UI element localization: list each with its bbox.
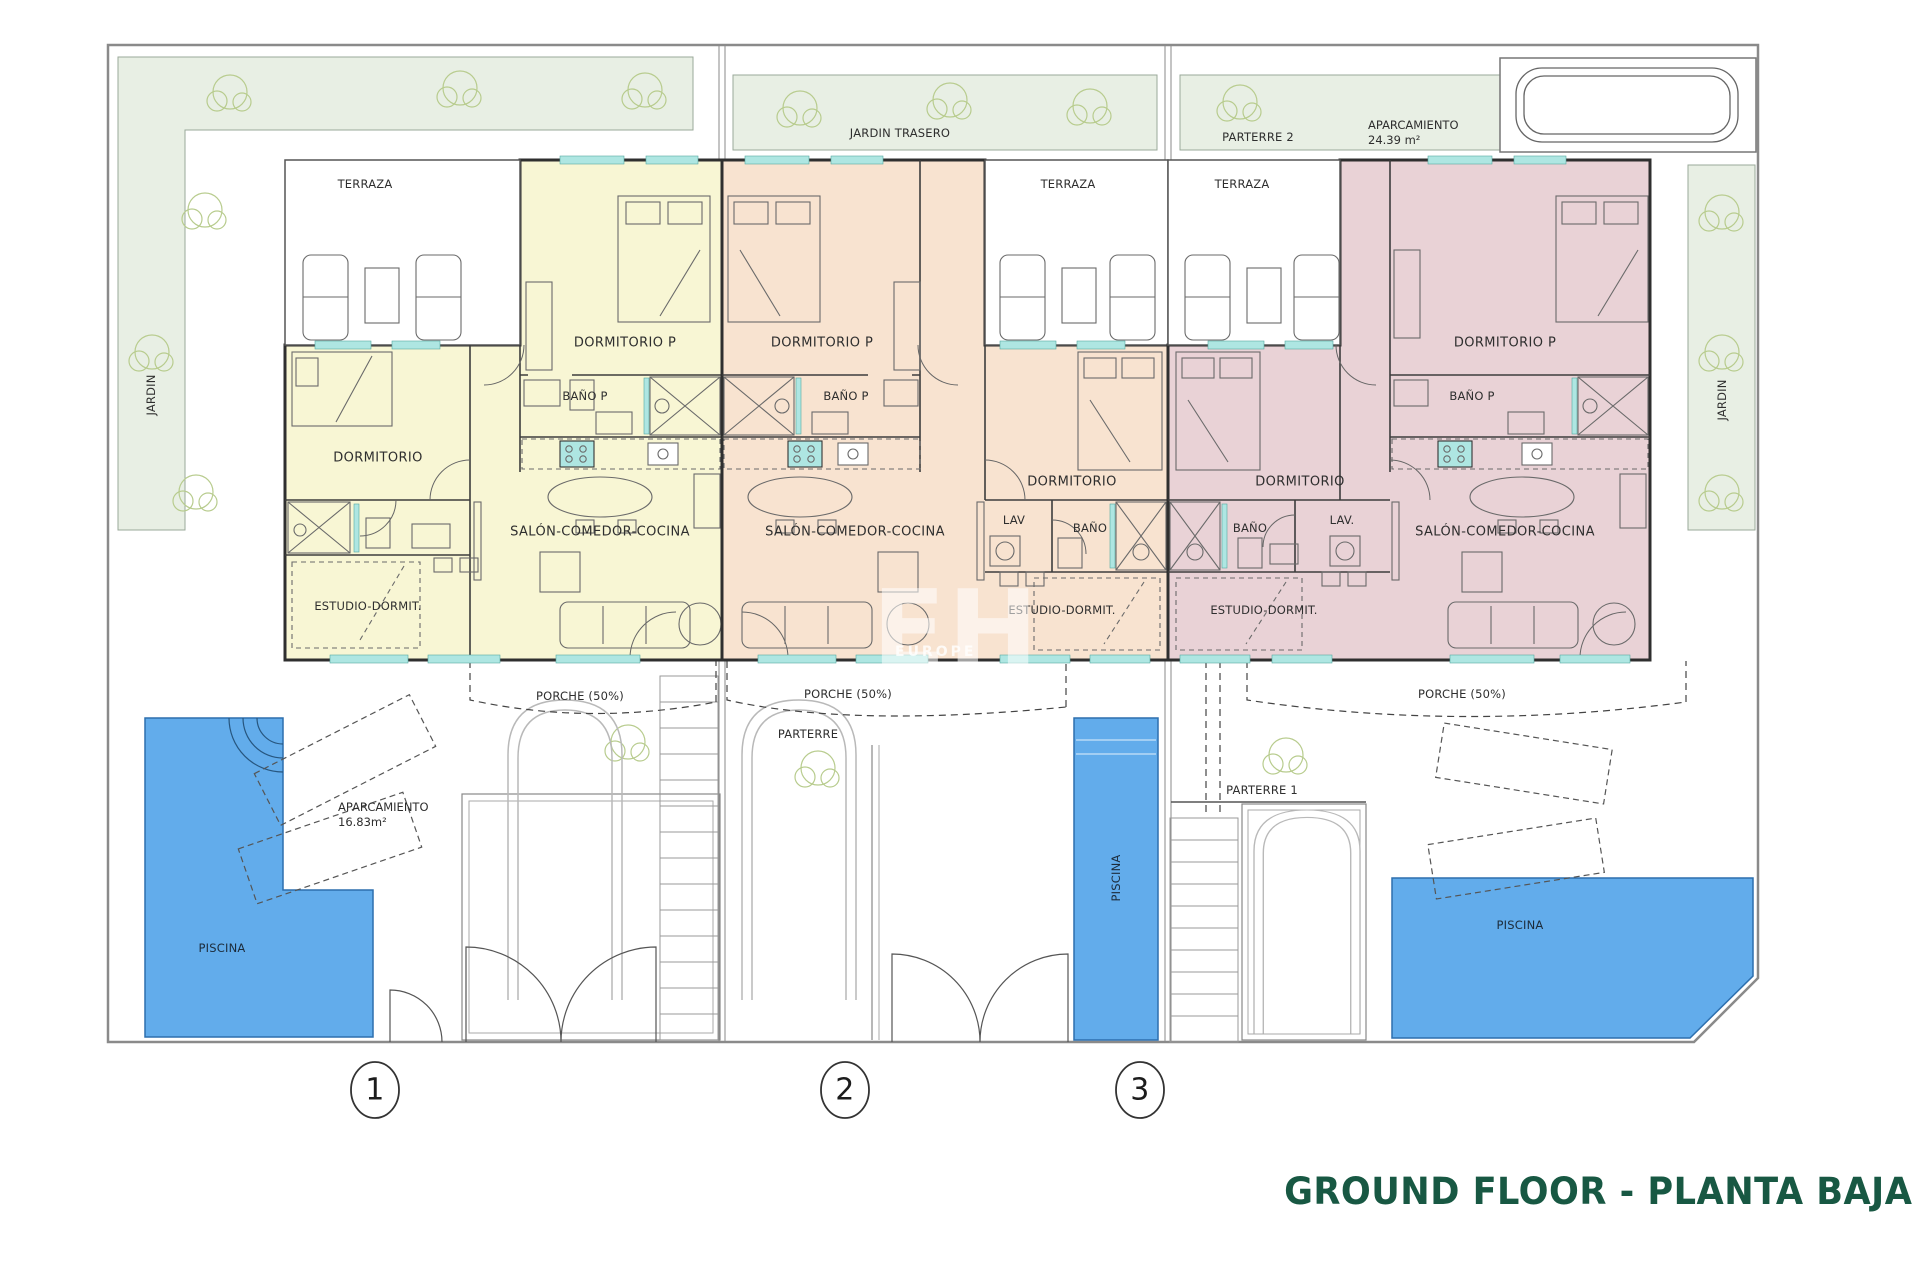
- u2-dormitorio: DORMITORIO: [1027, 475, 1117, 490]
- u2-parterre: PARTERRE: [778, 727, 838, 741]
- u3-parterre-1: PARTERRE 1: [1226, 783, 1298, 797]
- pool-unit1: [145, 718, 373, 1037]
- u2-bano-p: BAÑO P: [823, 389, 868, 403]
- watermark-name: EUROPE: [895, 644, 976, 660]
- u3-bano-p: BAÑO P: [1449, 389, 1494, 403]
- u3-estudio: ESTUDIO-DORMIT.: [1210, 603, 1317, 617]
- unit-3-number: 3: [1130, 1073, 1150, 1108]
- u1-aparcamiento-text: APARCAMIENTO: [338, 800, 429, 814]
- u2-dormitorio-p: DORMITORIO P: [771, 336, 873, 351]
- u1-porche: PORCHE (50%): [536, 689, 624, 703]
- u1-bano-p: BAÑO P: [562, 389, 607, 403]
- u3-bano: BAÑO: [1233, 521, 1267, 535]
- label-top-aparcamiento: APARCAMIENTO 24.39 m²: [1368, 118, 1459, 148]
- u3-porche: PORCHE (50%): [1418, 687, 1506, 701]
- court-car-icons: [508, 700, 1360, 1034]
- top-aparcamiento-text: APARCAMIENTO: [1368, 118, 1459, 132]
- entry-stairs: [1170, 818, 1238, 1042]
- u3-lav: LAV.: [1330, 513, 1355, 527]
- u3-dormitorio-p: DORMITORIO P: [1454, 336, 1556, 351]
- u3-salon: SALÓN-COMEDOR-COCINA: [1415, 525, 1595, 540]
- top-parking: [1500, 58, 1756, 152]
- u1-aparcamiento-area: 16.83m²: [338, 815, 387, 829]
- pools: [145, 718, 1753, 1040]
- u1-salon: SALÓN-COMEDOR-COCINA: [510, 525, 690, 540]
- u1-dormitorio: DORMITORIO: [333, 451, 423, 466]
- label-parterre-2: PARTERRE 2: [1222, 130, 1294, 144]
- unit-1-building: [285, 156, 722, 663]
- watermark-logo: EH: [872, 568, 1040, 693]
- terraza-1: [285, 160, 520, 345]
- u2-bano: BAÑO: [1073, 521, 1107, 535]
- unit-number-circles: [351, 1062, 1164, 1118]
- u2-salon: SALÓN-COMEDOR-COCINA: [765, 525, 945, 540]
- u2-terraza: TERRAZA: [1041, 177, 1096, 191]
- u1-terraza: TERRAZA: [338, 177, 393, 191]
- walkway-ladder: [660, 676, 718, 1040]
- u2-lav: LAV: [1003, 513, 1025, 527]
- gate-arcs: [390, 947, 1068, 1042]
- floor-plan-canvas: JARDIN JARDIN JARDIN TRASERO PARTERRE 2 …: [0, 0, 1920, 1280]
- top-aparcamiento-area: 24.39 m²: [1368, 133, 1420, 147]
- u2-piscina: PISCINA: [1109, 855, 1123, 902]
- pool-unit3: [1392, 878, 1753, 1038]
- u3-terraza: TERRAZA: [1215, 177, 1270, 191]
- u1-piscina: PISCINA: [199, 941, 246, 955]
- u1-aparcamiento: APARCAMIENTO 16.83m²: [338, 800, 429, 830]
- u1-estudio: ESTUDIO-DORMIT.: [314, 599, 421, 613]
- label-jardin-trasero: JARDIN TRASERO: [850, 126, 950, 140]
- u3-piscina: PISCINA: [1497, 918, 1544, 932]
- unit-1-number: 1: [365, 1073, 385, 1108]
- u3-dormitorio: DORMITORIO: [1255, 475, 1345, 490]
- page-title: GROUND FLOOR - PLANTA BAJA: [1284, 1170, 1912, 1213]
- label-jardin-left: JARDIN: [144, 374, 158, 415]
- u1-dormitorio-p: DORMITORIO P: [574, 336, 676, 351]
- unit-2-number: 2: [835, 1073, 855, 1108]
- parking-spaces: [238, 695, 1612, 904]
- unit-3-building: [1168, 156, 1650, 663]
- label-jardin-right: JARDIN: [1715, 379, 1729, 420]
